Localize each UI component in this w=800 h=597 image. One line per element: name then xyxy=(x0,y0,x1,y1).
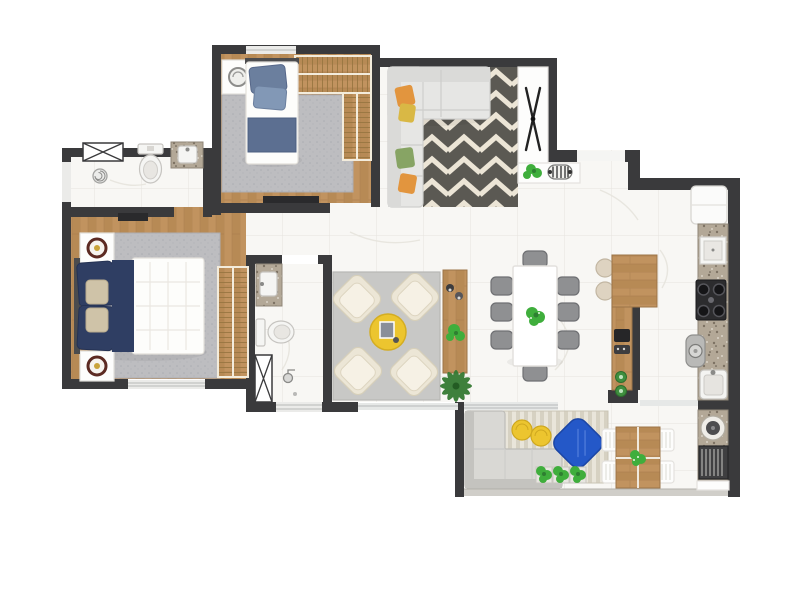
balcony-glass-railing xyxy=(464,489,728,496)
master-window xyxy=(128,380,205,389)
wall-segment xyxy=(728,178,740,497)
floor-plan-svg xyxy=(0,0,800,597)
wall-segment xyxy=(632,307,640,390)
x-decor-center xyxy=(531,117,536,122)
vanity-sink xyxy=(256,264,282,306)
floor-plan-page xyxy=(0,0,800,597)
bathroom-2-window xyxy=(276,402,322,412)
wall-segment xyxy=(380,58,557,67)
bbq-area xyxy=(697,410,729,490)
wall-segment xyxy=(205,379,255,389)
nightstand-top xyxy=(80,233,114,263)
entry-door-opening xyxy=(577,151,625,161)
wall-segment xyxy=(455,402,464,497)
vanity-sink xyxy=(171,142,203,168)
wall-segment xyxy=(62,208,71,389)
striped-decor xyxy=(548,165,572,179)
wood-console xyxy=(443,270,467,373)
double-bed xyxy=(74,258,204,354)
nightstand-bottom xyxy=(80,351,114,381)
wall-segment xyxy=(221,203,330,213)
tv-console xyxy=(263,196,319,203)
wall-segment xyxy=(371,45,380,207)
coffee-machine xyxy=(614,329,630,342)
floor-ensuite-doorway xyxy=(174,207,203,219)
kitchen-balcony-door xyxy=(640,400,698,406)
wall-segment xyxy=(212,45,221,215)
table-book xyxy=(380,322,394,338)
bbq-shelf xyxy=(697,481,729,490)
washer xyxy=(686,335,705,367)
single-bed xyxy=(245,58,299,164)
table-decor xyxy=(393,337,399,343)
kitchen-sink xyxy=(700,370,727,399)
fridge xyxy=(691,186,727,224)
toilet xyxy=(138,144,163,183)
planters xyxy=(536,466,586,483)
bedding xyxy=(77,260,134,352)
wall-segment xyxy=(323,255,332,412)
bathroom-1-side-window xyxy=(62,162,71,202)
bar-stool xyxy=(596,282,614,300)
coffee-table xyxy=(370,314,406,350)
microwave xyxy=(700,237,726,264)
wall-segment xyxy=(548,150,577,162)
shower-drain xyxy=(93,169,107,183)
balcony-sliding-door xyxy=(464,402,558,410)
bar-stool xyxy=(596,259,614,277)
wall-segment xyxy=(322,402,358,412)
stove xyxy=(696,280,726,320)
planter-foliage xyxy=(536,466,586,483)
slatted-wardrobe xyxy=(218,267,248,377)
wall-segment xyxy=(246,402,276,412)
toaster xyxy=(614,345,630,354)
wall-segment xyxy=(203,148,212,217)
tv-console xyxy=(118,213,148,221)
wall-segment xyxy=(548,58,557,162)
